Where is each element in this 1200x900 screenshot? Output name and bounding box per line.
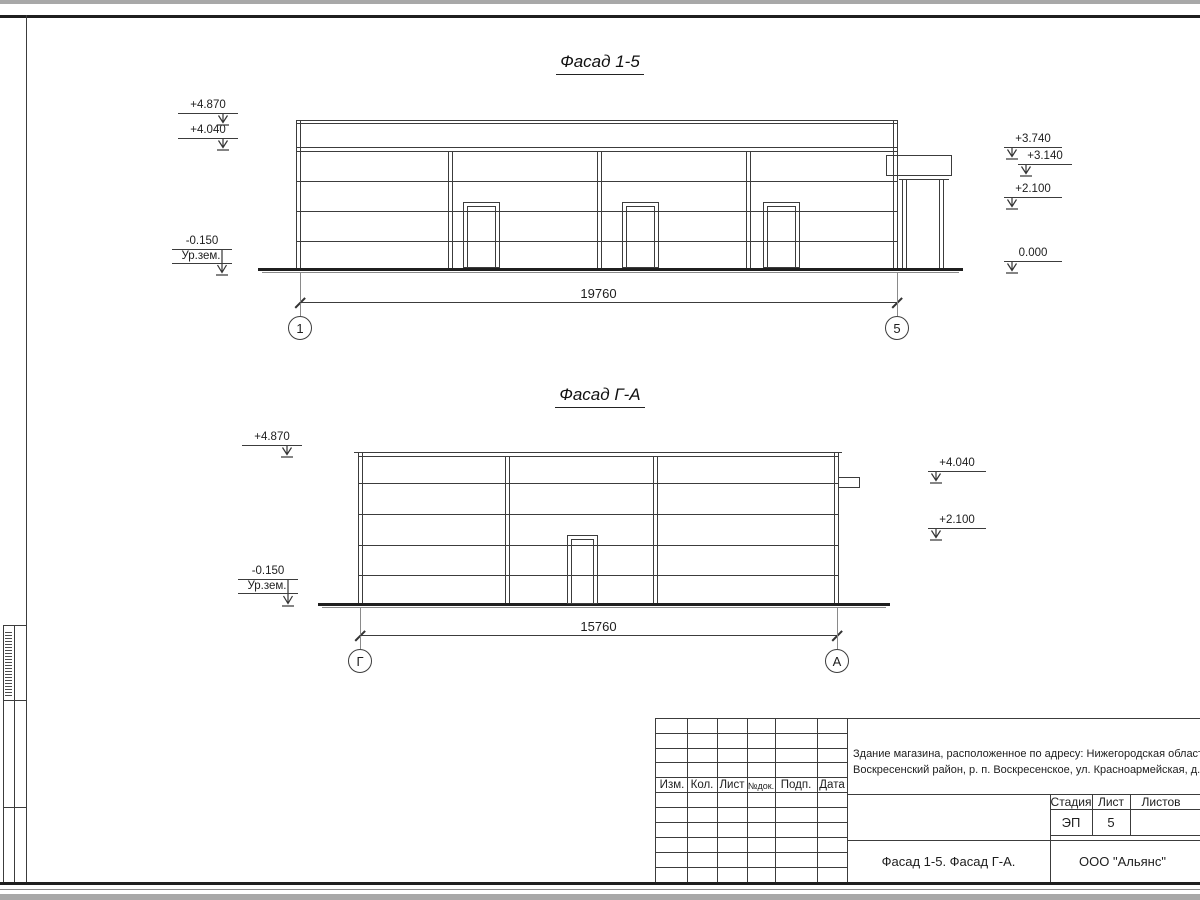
drawing-line	[838, 452, 839, 604]
drawing-line	[687, 718, 688, 882]
drawing-line	[597, 151, 598, 269]
drawing-line	[1018, 164, 1072, 165]
drawing-line	[296, 123, 897, 124]
dimension-line	[300, 302, 897, 303]
level-mark-label: +2.100	[928, 514, 986, 526]
stamp-line	[3, 625, 26, 626]
drawing-line	[354, 452, 842, 453]
level-arrow-icon	[214, 113, 232, 127]
extension-line	[897, 273, 898, 316]
drawing-line	[1004, 197, 1062, 198]
project-address-line2: Воскресенский район, р. п. Воскресенское…	[853, 764, 1200, 776]
axis-bubble-5: 5	[885, 316, 909, 340]
drawing-line	[928, 528, 986, 529]
level-arrow-icon	[214, 138, 232, 152]
drawing-line	[817, 718, 818, 882]
drawing-line	[505, 456, 506, 604]
canopy-edge	[838, 477, 860, 488]
dimension-label: 19760	[300, 286, 897, 301]
drawing-line	[653, 456, 654, 604]
drawing-line	[172, 263, 232, 264]
drawing-line	[300, 120, 301, 269]
level-arrow-icon	[927, 471, 945, 485]
drawing-line	[655, 777, 847, 778]
level-arrow-icon	[1017, 164, 1035, 178]
extension-line	[837, 608, 838, 649]
drawing-line	[747, 718, 748, 882]
drawing-line	[655, 718, 656, 882]
bottom-edge-band	[0, 894, 1200, 900]
drawing-line	[939, 179, 940, 269]
frame-line	[0, 889, 1200, 890]
drawing-line	[655, 762, 847, 763]
drawing-line	[834, 452, 835, 604]
rev-col-izm: Изм.	[657, 779, 687, 791]
drawing-line	[655, 792, 847, 793]
level-mark-label: +3.740	[1004, 133, 1062, 145]
level-mark-label: 0.000	[1004, 247, 1062, 259]
frame-line	[0, 882, 1200, 885]
door-frame	[626, 206, 655, 268]
level-arrow-icon	[1003, 197, 1021, 211]
axis-bubble-a: А	[825, 649, 849, 673]
rev-col-kol: Кол.	[687, 779, 717, 791]
ground-line	[322, 607, 886, 608]
drawing-line	[928, 471, 986, 472]
drawing-line	[657, 456, 658, 604]
drawing-line	[1004, 261, 1062, 262]
stage-value: ЭП	[1050, 815, 1092, 830]
project-address-line1: Здание магазина, расположенное по адресу…	[853, 748, 1200, 760]
drawing-line	[1004, 147, 1062, 148]
ground-level-label: -0.150	[172, 235, 232, 247]
extension-line	[360, 608, 361, 649]
drawing-line	[717, 718, 718, 882]
drawing-line	[655, 748, 847, 749]
level-arrow-icon	[1003, 261, 1021, 275]
level-arrow-icon	[279, 580, 297, 608]
drawing-line	[296, 120, 897, 121]
drawing-line	[655, 718, 1200, 719]
drawing-line	[906, 179, 907, 269]
drawing-line	[1050, 809, 1200, 810]
drawing-sheet: Фасад 1-5 +4.870 +4.040 -0.150 Ур.зем. +…	[0, 0, 1200, 900]
drawing-line	[358, 456, 838, 457]
drawing-line	[296, 147, 897, 148]
drawing-line	[655, 867, 847, 868]
drawing-line	[238, 579, 298, 580]
ground-level-label: -0.150	[238, 565, 298, 577]
drawing-line	[358, 545, 838, 546]
rev-col-list: Лист	[717, 779, 747, 791]
ground-line	[258, 268, 963, 271]
drawing-line	[655, 822, 847, 823]
door-frame	[467, 206, 496, 268]
drawing-line	[448, 151, 449, 269]
drawing-line	[746, 151, 747, 269]
drawing-line	[847, 794, 1200, 795]
axis-bubble-1: 1	[288, 316, 312, 340]
drawing-line	[655, 837, 847, 838]
drawing-line	[897, 120, 898, 269]
level-arrow-icon	[1003, 147, 1021, 161]
sheets-header: Листов	[1130, 795, 1192, 809]
frame-line	[0, 15, 1200, 18]
company-name: ООО "Альянс"	[1050, 854, 1195, 869]
level-mark-label: +4.040	[928, 457, 986, 469]
door-frame	[767, 206, 796, 268]
level-mark-label: +4.870	[242, 431, 302, 443]
rev-col-ndok: №док.	[747, 781, 775, 791]
drawing-line	[509, 456, 510, 604]
level-mark-label: +3.140	[1018, 150, 1072, 162]
drawing-line	[1130, 794, 1131, 835]
extension-line	[300, 273, 301, 316]
drawing-line	[750, 151, 751, 269]
top-edge-band	[0, 0, 1200, 4]
drawing-line	[943, 179, 944, 269]
frame-line	[26, 15, 27, 882]
level-mark-label: +2.100	[1004, 183, 1062, 195]
vertical-stamp-text	[5, 630, 12, 696]
drawing-line	[655, 733, 847, 734]
drawing-line	[893, 120, 894, 269]
drawing-line	[238, 593, 298, 594]
drawing-line	[775, 718, 776, 882]
annex-canopy	[886, 155, 952, 176]
drawing-line	[1050, 835, 1200, 836]
ground-line	[262, 272, 959, 273]
sheet-number: 5	[1092, 815, 1130, 830]
drawing-line	[358, 483, 838, 484]
stamp-line	[14, 625, 15, 882]
ground-line	[318, 603, 890, 606]
dimension-line	[360, 635, 837, 636]
drawing-line	[178, 113, 238, 114]
drawing-line	[178, 138, 238, 139]
drawing-line	[655, 852, 847, 853]
sheet-header: Лист	[1092, 795, 1130, 809]
level-mark-label: +4.870	[178, 99, 238, 111]
stage-header: Стадия	[1050, 795, 1092, 809]
drawing-line	[1092, 794, 1093, 835]
drawing-line	[601, 151, 602, 269]
drawing-line	[452, 151, 453, 269]
drawing-line	[847, 840, 1200, 841]
drawing-line	[655, 807, 847, 808]
drawing-line	[358, 514, 838, 515]
axis-bubble-g: Г	[348, 649, 372, 673]
drawing-line	[358, 452, 359, 604]
rev-col-data: Дата	[817, 779, 847, 791]
drawing-line	[358, 575, 838, 576]
door-frame	[571, 539, 594, 604]
stamp-line	[3, 807, 26, 808]
drawing-line	[1050, 794, 1051, 882]
drawing-line	[847, 718, 848, 882]
stamp-line	[3, 625, 4, 882]
dimension-label: 15760	[360, 619, 837, 634]
facade-1-5-title: Фасад 1-5	[520, 52, 680, 72]
drawing-line	[172, 249, 232, 250]
rev-col-podp: Подп.	[775, 779, 817, 791]
level-arrow-icon	[927, 528, 945, 542]
stamp-line	[3, 700, 26, 701]
drawing-line	[902, 179, 903, 269]
drawing-title: Фасад 1-5. Фасад Г-А.	[847, 854, 1050, 869]
drawing-line	[242, 445, 302, 446]
facade-g-a-title: Фасад Г-А	[520, 385, 680, 405]
drawing-line	[296, 120, 297, 269]
level-arrow-icon	[278, 445, 296, 459]
drawing-line	[362, 452, 363, 604]
